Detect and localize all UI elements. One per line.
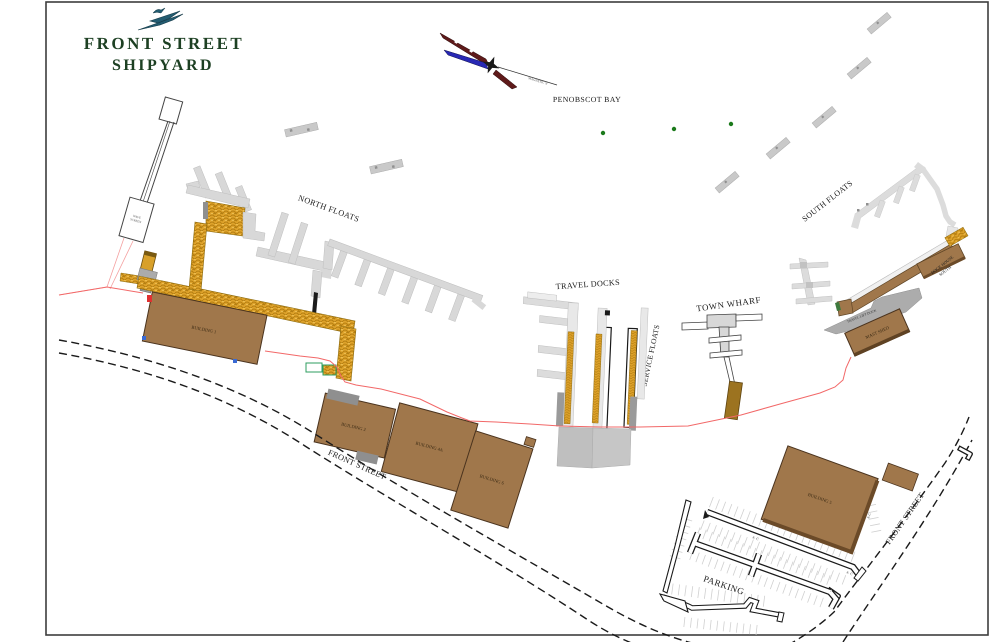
svg-text:SHIPYARD: SHIPYARD — [112, 57, 214, 74]
svg-text:PENOBSCOT BAY: PENOBSCOT BAY — [553, 95, 621, 104]
svg-text:FRONT STREET: FRONT STREET — [84, 34, 245, 53]
